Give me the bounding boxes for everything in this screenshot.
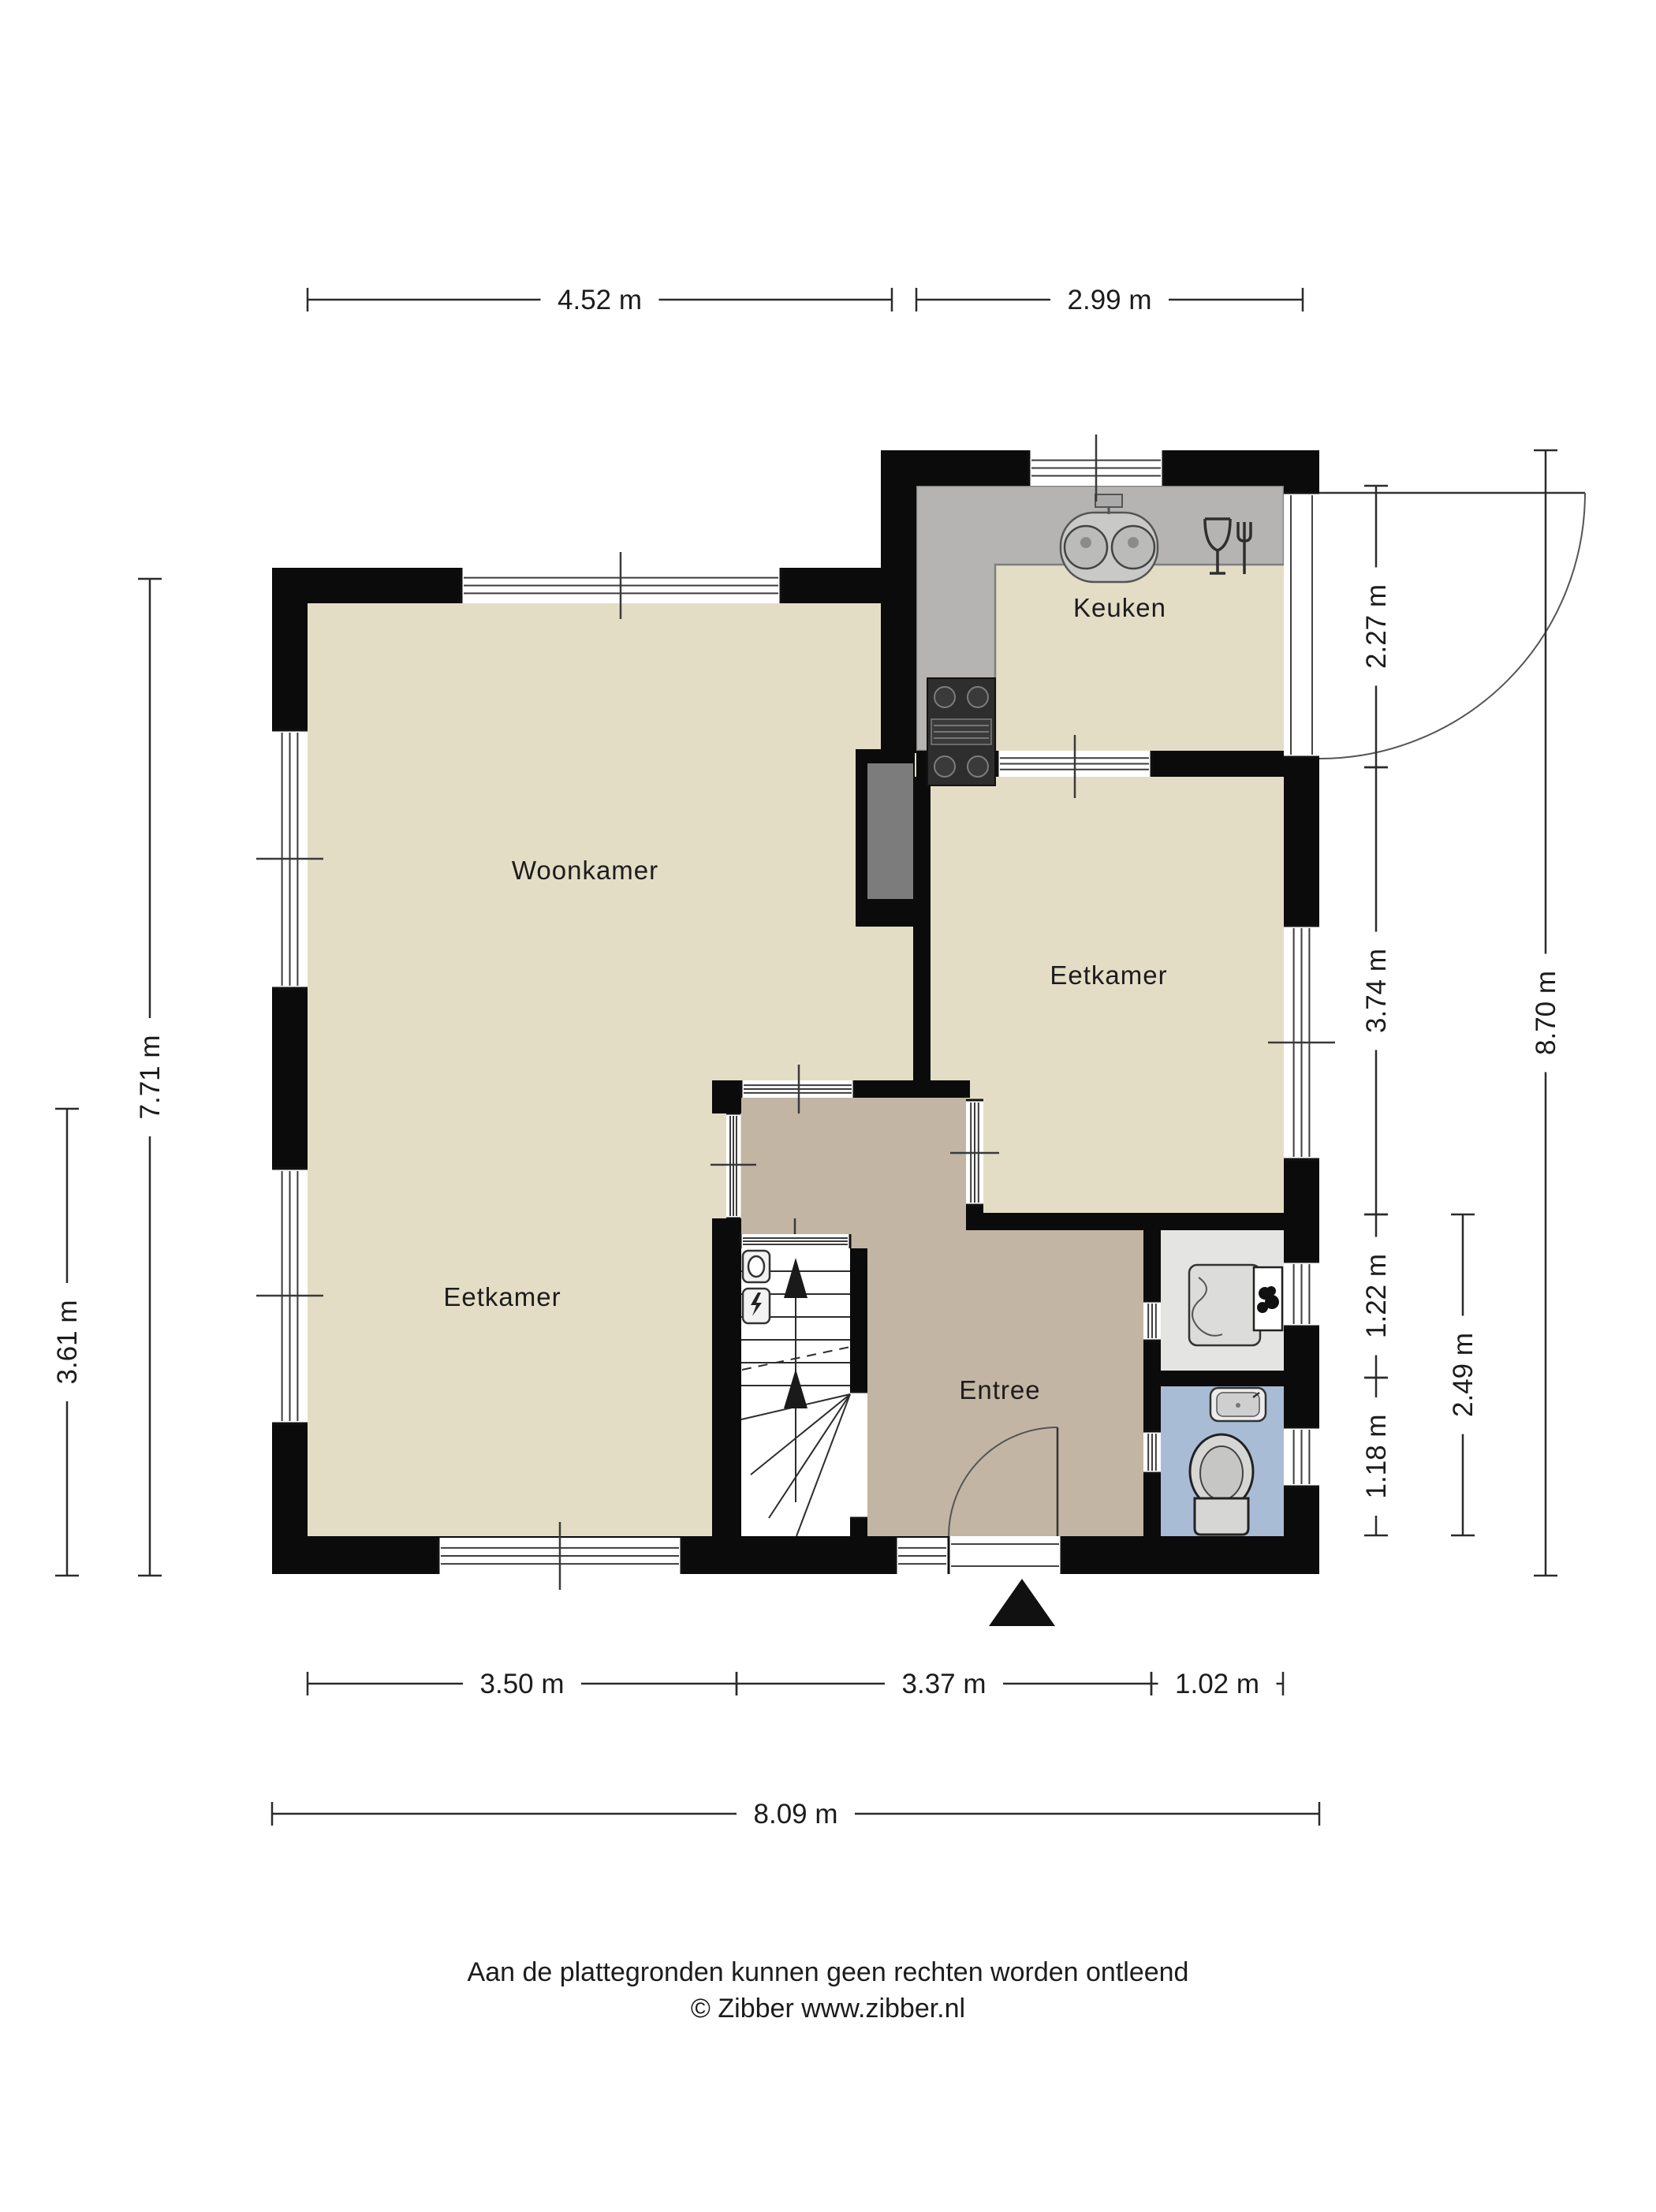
wall-stairs-right-stub [850, 1518, 867, 1538]
dimension: 3.61 m [49, 1109, 85, 1576]
window [1143, 1301, 1161, 1341]
wall-stairs-left [712, 1218, 741, 1538]
label-eetkamer-left: Eetkamer [443, 1282, 561, 1311]
niche-interior [867, 763, 913, 899]
dimension-label: 1.02 m [1175, 1669, 1259, 1699]
dimension-label: 3.61 m [52, 1300, 83, 1385]
label-entree: Entree [959, 1375, 1040, 1404]
dimension: 2.49 m [1445, 1214, 1481, 1535]
label-eetkamer-right: Eetkamer [1050, 961, 1167, 990]
dimension-label: 8.09 m [754, 1799, 838, 1830]
window [1284, 1427, 1319, 1486]
dimension-label: 3.50 m [480, 1669, 565, 1699]
toilet-icon [1190, 1434, 1253, 1535]
dimension-label: 7.71 m [135, 1035, 166, 1120]
dimension: 1.02 m [1151, 1666, 1283, 1702]
window [1143, 1431, 1161, 1473]
stove-icon [927, 678, 995, 785]
wall-dining-bottom [975, 1213, 1284, 1230]
dimension: 3.37 m [737, 1666, 1151, 1702]
label-keuken: Keuken [1073, 593, 1166, 622]
dimension-label: 3.37 m [902, 1669, 987, 1699]
dimension-label: 2.27 m [1361, 584, 1392, 669]
label-woonkamer: Woonkamer [512, 856, 658, 885]
dimension: 2.99 m [916, 282, 1303, 318]
dimension: 4.52 m [308, 282, 892, 318]
wall-washroom-left [1143, 1230, 1161, 1538]
dimension: 7.71 m [132, 579, 168, 1576]
dimension: 8.70 m [1527, 450, 1564, 1576]
window [726, 1113, 740, 1218]
entrance-arrow-icon [989, 1579, 1055, 1626]
dimension: 3.50 m [308, 1666, 737, 1702]
footer-disclaimer: Aan de plattegronden kunnen geen rechten… [468, 1957, 1189, 1987]
wall-living-dining [913, 777, 931, 1080]
dimension-label: 2.99 m [1068, 285, 1152, 315]
dimension: 8.09 m [272, 1796, 1319, 1832]
dimension: 2.27 m [1358, 486, 1394, 767]
floor-dining-right [931, 777, 1284, 1213]
dimension-label: 1.18 m [1361, 1415, 1392, 1499]
kitchen-exterior-door [1284, 493, 1585, 759]
dimension-label: 1.22 m [1361, 1254, 1392, 1338]
wall-kitchen-left-lower [881, 603, 916, 753]
dimension-label: 3.74 m [1361, 949, 1392, 1033]
window [741, 1080, 854, 1098]
dimension-label: 2.49 m [1448, 1333, 1479, 1417]
floor-plan: Woonkamer Eetkamer Keuken Eetkamer Entre… [0, 0, 1656, 2208]
wall-corner-block [712, 1080, 741, 1113]
wall-washroom-toilet [1161, 1371, 1284, 1386]
dimension: 1.22 m [1358, 1214, 1394, 1378]
toilet-sink-icon [1210, 1388, 1266, 1421]
window [1284, 1262, 1319, 1326]
dimension-label: 4.52 m [558, 285, 642, 315]
wall-stairs-right-upper [850, 1248, 867, 1392]
window [740, 1234, 850, 1248]
footer-copyright: © Zibber www.zibber.nl [691, 1994, 965, 2024]
wall-bottom [272, 1536, 1319, 1574]
dimension: 3.74 m [1358, 767, 1394, 1214]
dimension: 1.18 m [1358, 1378, 1394, 1535]
dimension-label: 8.70 m [1531, 971, 1561, 1055]
stairs-doorway [850, 1392, 867, 1518]
window [896, 1538, 949, 1574]
wall-kitchen-left-upper [881, 486, 916, 603]
